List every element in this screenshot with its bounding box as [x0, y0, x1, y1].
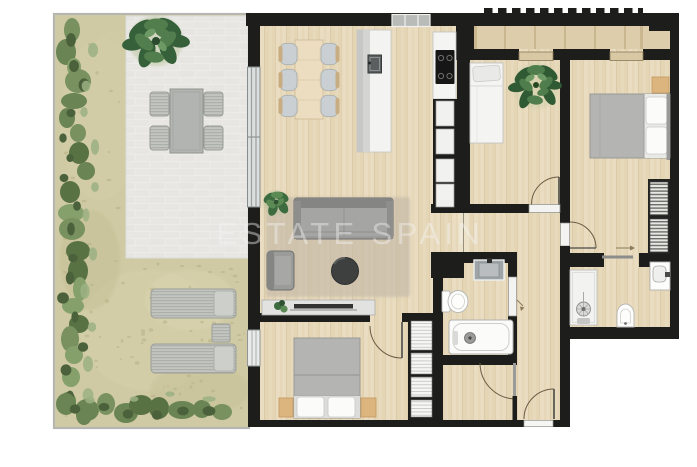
svg-text:ESTATE SPAIN: ESTATE SPAIN: [217, 216, 485, 251]
